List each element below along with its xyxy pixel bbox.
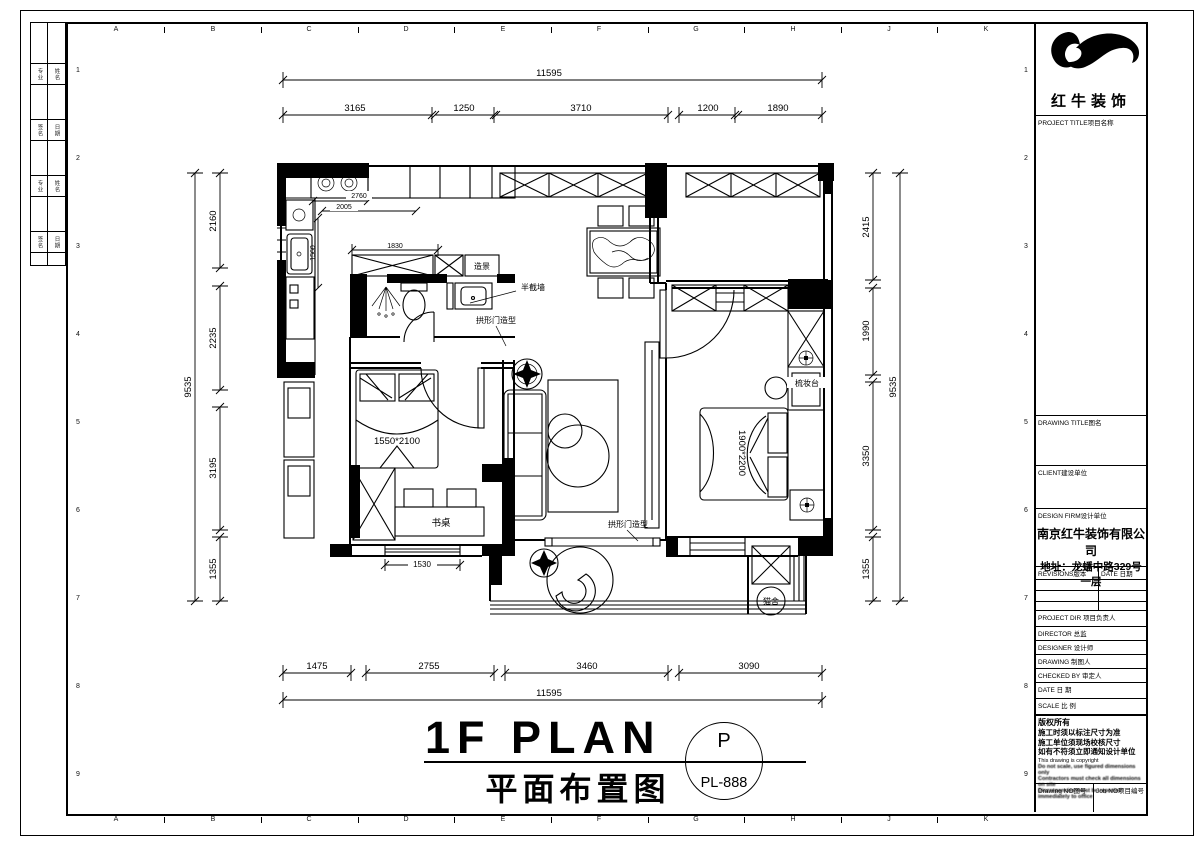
title-block: 红牛装饰 PROJECT TITLE项目名称 DRAWING TITLE图名 C… (1034, 22, 1146, 812)
bedroom-door (421, 368, 484, 428)
chair (404, 489, 433, 507)
round-chair (547, 425, 609, 487)
dim-value: 1200 (697, 103, 718, 114)
ceiling-symbol (790, 490, 824, 520)
marble-pattern (593, 237, 655, 267)
label-desk: 书桌 (431, 517, 451, 529)
drawing-title-section: DRAWING TITLE图名 (1036, 415, 1146, 465)
ceiling-symbol (799, 351, 813, 365)
dim-value: 3165 (344, 103, 365, 114)
dim-value: 2415 (861, 216, 872, 237)
ceiling-fan (530, 549, 558, 577)
closets (352, 173, 824, 584)
dim-value: 1830 (387, 243, 403, 250)
drawing-title-label: DRAWING TITLE图名 (1036, 416, 1146, 428)
dim-value: 11595 (536, 688, 562, 699)
dimensions-interior: 2760 2005 1560 1830 1530 (309, 191, 464, 571)
stool (765, 377, 787, 399)
dim-value: 3460 (576, 661, 597, 672)
chair (598, 206, 623, 226)
scale-label: SCALE 比 例 (1036, 699, 1146, 711)
dim-value: 1990 (861, 320, 872, 341)
pillow (768, 413, 787, 453)
half-wall (447, 283, 453, 309)
director-label: DIRECTOR 总监 (1036, 627, 1146, 639)
client-label: CLIENT建设单位 (1036, 466, 1146, 478)
dim-value: 1355 (208, 558, 219, 579)
logo-section: 红牛装饰 (1036, 22, 1146, 115)
label-bed-size: 1550*2100 (374, 436, 420, 447)
dimensions-left: 9535 2160 2235 3195 1355 (183, 169, 228, 605)
ceiling-fan (512, 359, 542, 389)
shower (372, 287, 400, 317)
design-firm-section: DESIGN FIRM设计单位 南京红牛装饰有限公司 地址：龙蟠中路329号一层 (1036, 508, 1146, 566)
sheet-title-en: 1F PLAN (425, 712, 662, 764)
dim-value: 3710 (570, 103, 591, 114)
dim-value: 3350 (861, 445, 872, 466)
company-logo (1038, 24, 1144, 86)
copyright-line: 如有不符须立即通知设计单位 (1036, 748, 1146, 758)
dim-value: 3090 (738, 661, 759, 672)
dimensions-top: 11595 3165 1250 3710 1200 1890 (279, 68, 826, 123)
chair (598, 278, 623, 298)
project-title-section: PROJECT TITLE项目名称 (1036, 115, 1146, 415)
label-dressing-table: 梳妆台 (795, 378, 819, 388)
master-window (690, 537, 745, 556)
date-label: DATE 日 期 (1036, 683, 1146, 695)
kitchen (284, 166, 515, 538)
copyright-title: 版权所有 (1036, 716, 1146, 728)
numbers-section: Drawing NO图号 Job NO项目编号 (1036, 783, 1146, 812)
copyright-en-line: Do not scale, use figured dimensions onl… (1036, 764, 1146, 776)
dim-value: 1355 (861, 558, 872, 579)
drawing-by-label: DRAWING 制图人 (1036, 655, 1146, 667)
dim-value: 9535 (888, 376, 899, 397)
balcony (530, 547, 613, 613)
revisions-date-label: DATE 日期 (1099, 567, 1135, 579)
dim-value: 2235 (208, 327, 219, 348)
dim-value: 2760 (351, 193, 367, 200)
dimensions-right: 2415 1990 3350 1355 9535 (861, 169, 908, 605)
living-room (504, 342, 660, 546)
dim-value: 9535 (183, 376, 194, 397)
company-name: 红牛装饰 (1036, 90, 1146, 111)
label-half-wall: 半截墙 (521, 282, 545, 292)
bed (356, 370, 438, 468)
badge-code: PL-888 (686, 775, 762, 791)
dim-value: 11595 (536, 68, 562, 79)
second-bedroom (356, 368, 484, 536)
bedroom-window (385, 545, 460, 556)
pillow (768, 457, 787, 497)
dim-value: 1530 (413, 560, 431, 569)
dim-value: 1250 (453, 103, 474, 114)
badge-letter: P (686, 730, 762, 753)
drawing-no-label: Drawing NO图号 (1036, 784, 1093, 796)
project-director-label: PROJECT DIR 项目负责人 (1036, 611, 1146, 623)
design-firm-label: DESIGN FIRM设计单位 (1036, 509, 1146, 521)
dim-value: 2005 (336, 204, 352, 211)
label-landscape: 造景 (474, 261, 490, 271)
dim-value: 1560 (310, 245, 317, 261)
sheet-number-badge: P PL-888 (685, 722, 763, 800)
drawing-sheet: A B C D E F G H J K A B C D E F G H J K … (0, 0, 1200, 844)
copyright-line: 施工时须以标注尺寸为准 (1036, 728, 1146, 739)
round-table (547, 547, 613, 613)
master-bedroom (660, 290, 824, 520)
chair (447, 489, 476, 507)
design-firm-name: 南京红牛装饰有限公司 (1036, 525, 1146, 559)
cat-window (794, 556, 804, 601)
designer-label: DESIGNER 设计师 (1036, 641, 1146, 653)
wall-lines (281, 166, 832, 614)
label-arch-door-2: 拱形门造型 (608, 519, 648, 529)
dim-value: 1475 (306, 661, 327, 672)
job-no-label: Job NO项目编号 (1094, 784, 1146, 796)
bathroom (372, 283, 492, 342)
bath-door (404, 312, 434, 342)
arch-opening (545, 538, 660, 546)
revisions-label: REVISIONS版本 (1036, 567, 1088, 579)
dim-value: 3195 (208, 457, 219, 478)
label-cat-house: 猫舍 (763, 596, 779, 606)
client-section: CLIENT建设单位 (1036, 465, 1146, 508)
checked-by-label: CHECKED BY 审定人 (1036, 669, 1146, 681)
project-title-label: PROJECT TITLE项目名称 (1036, 116, 1146, 128)
dim-value: 2755 (418, 661, 439, 672)
copyright-section: 版权所有 施工时须以标注尺寸为准 施工单位须现场校核尺寸 如有不符须立即通知设计… (1036, 714, 1146, 783)
dim-value: 2160 (208, 210, 219, 231)
label-master-bed-size: 1900*2200 (736, 430, 747, 476)
revisions-section: REVISIONS版本 DATE 日期 (1036, 566, 1146, 610)
label-arch-door-1: 拱形门造型 (476, 315, 516, 325)
dim-value: 1890 (767, 103, 788, 114)
dimensions-bottom: 1475 2755 3460 3090 11595 (279, 661, 826, 708)
sheet-title-cn: 平面布置图 (428, 764, 728, 810)
